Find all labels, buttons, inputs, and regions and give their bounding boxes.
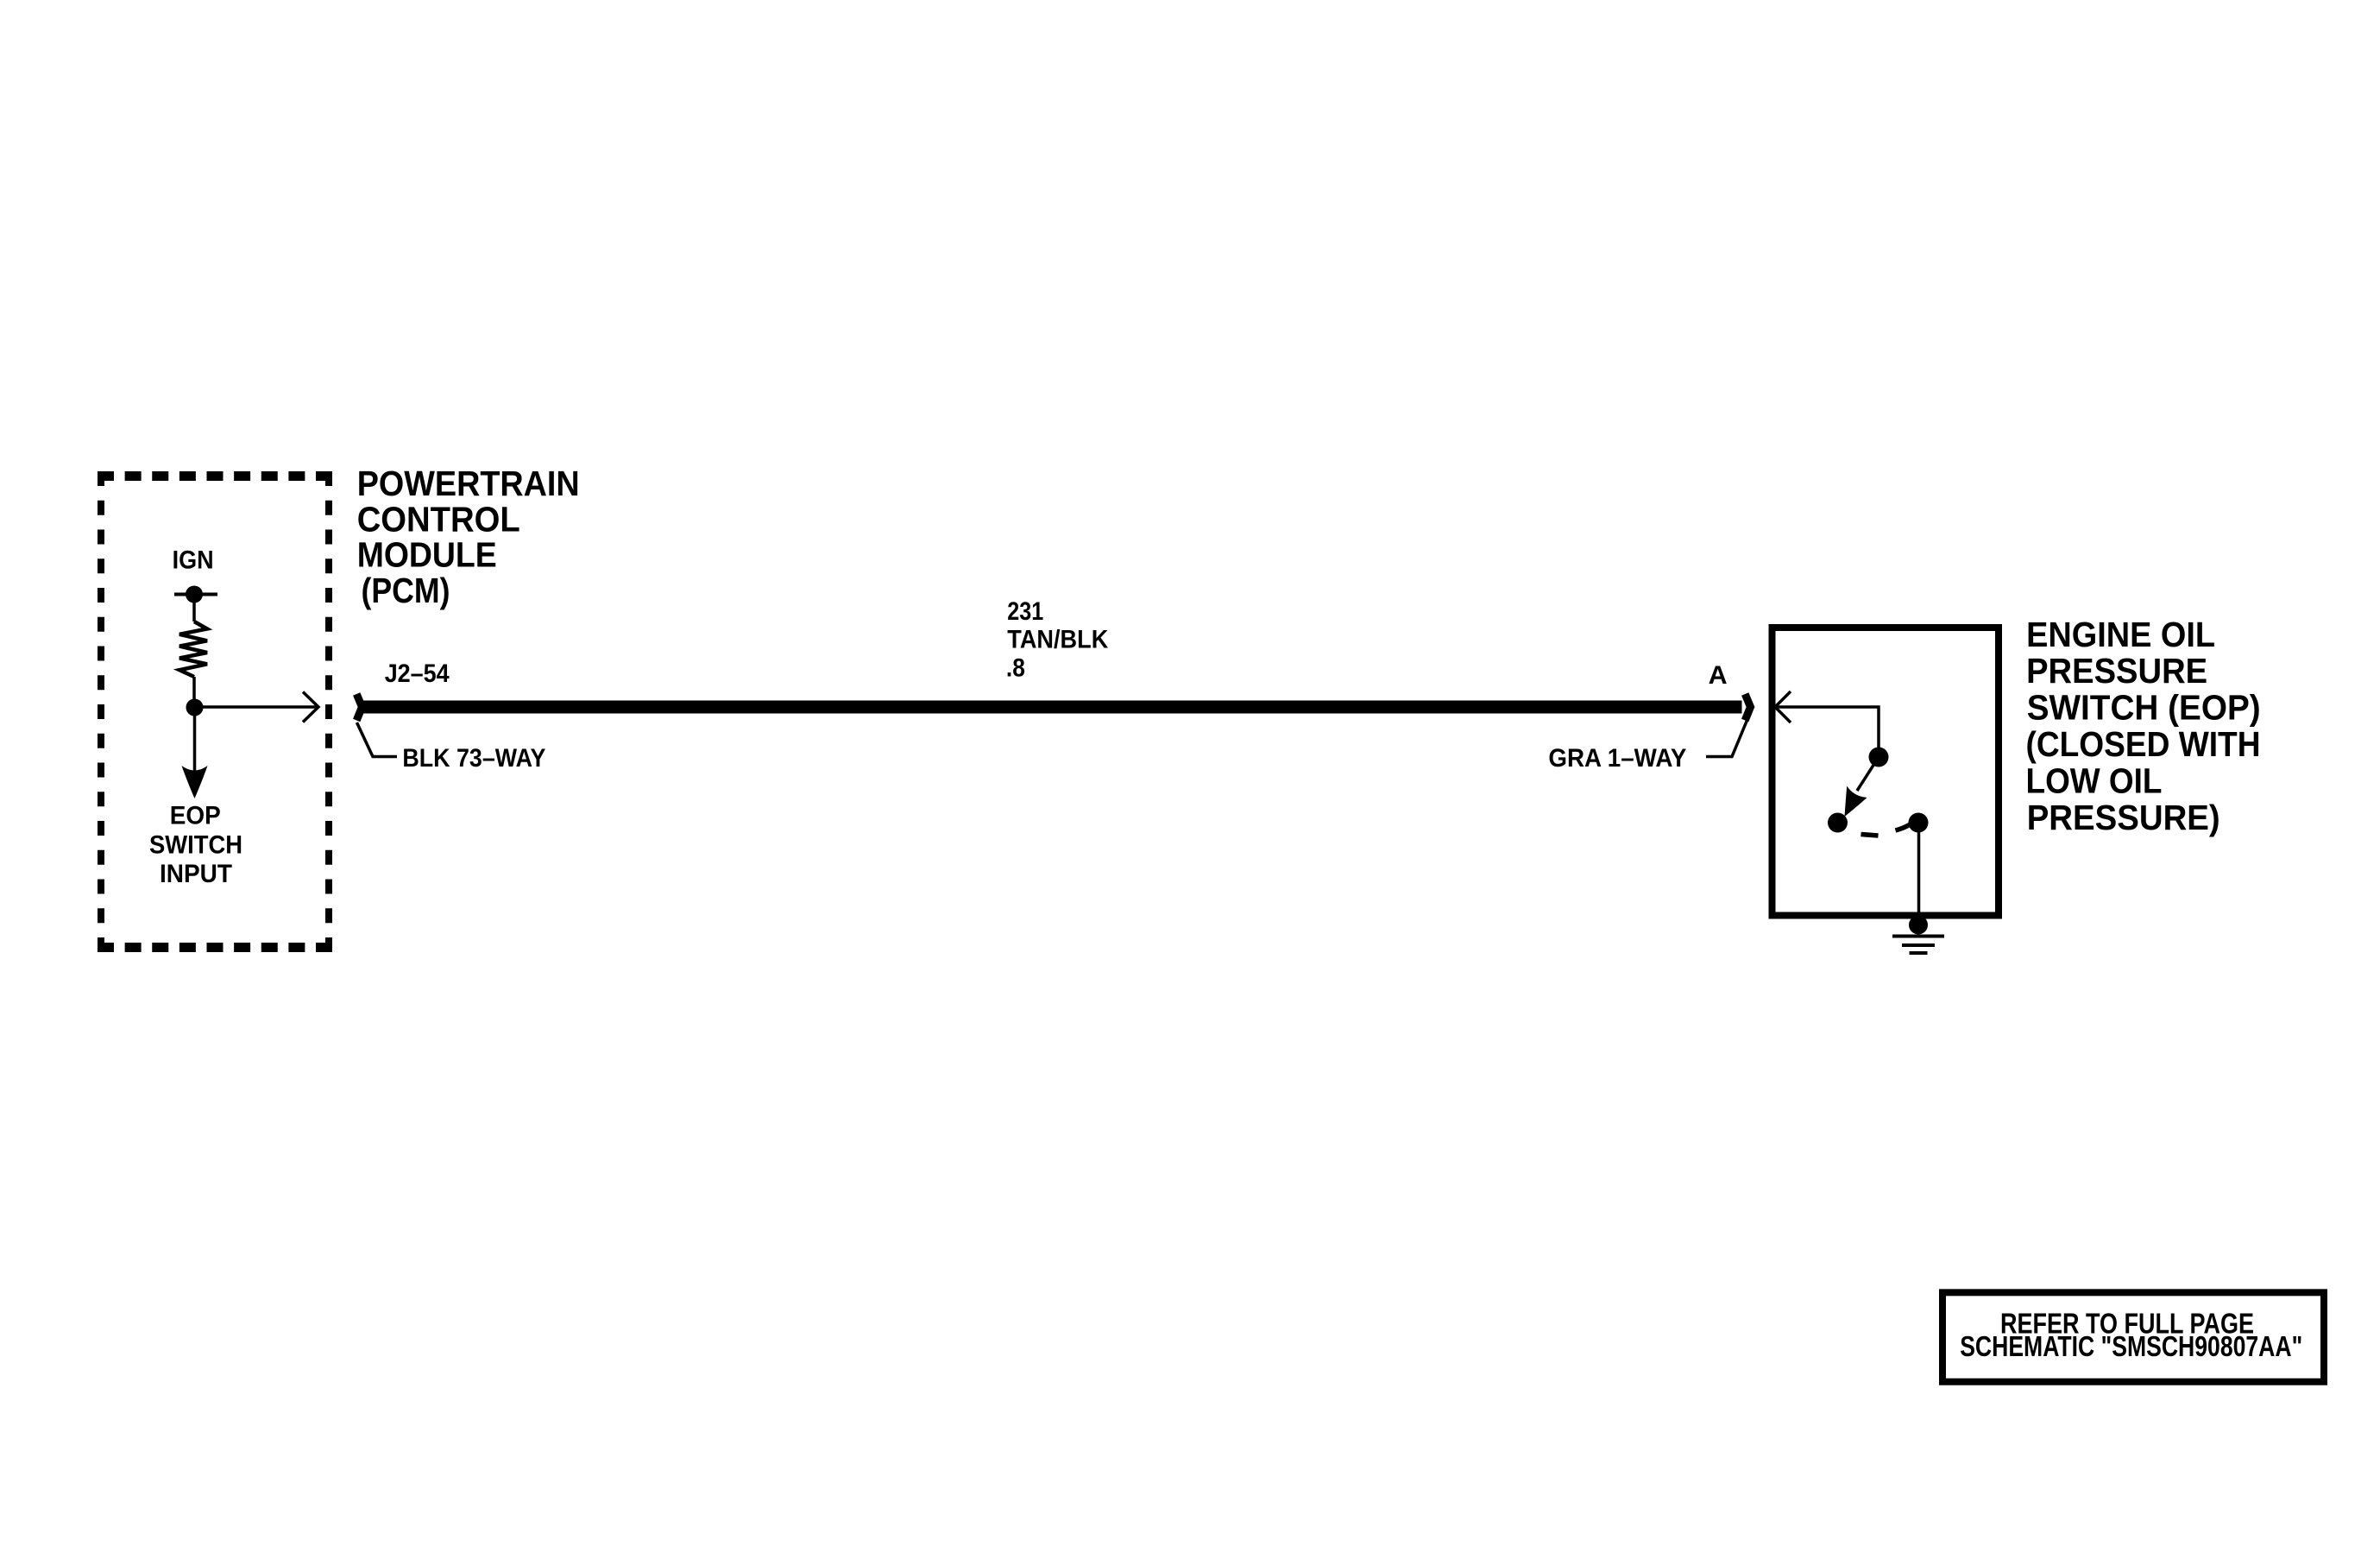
svg-text:231: 231	[1007, 597, 1043, 626]
svg-text:SWITCH (EOP): SWITCH (EOP)	[2027, 688, 2261, 728]
svg-text:(PCM): (PCM)	[362, 571, 450, 610]
svg-text:J2–54: J2–54	[385, 659, 450, 688]
svg-text:ENGINE OIL: ENGINE OIL	[2026, 615, 2215, 654]
svg-text:BLK 73–WAY: BLK 73–WAY	[402, 744, 545, 773]
svg-text:SWITCH: SWITCH	[149, 830, 242, 859]
svg-text:MODULE: MODULE	[357, 535, 497, 575]
svg-text:INPUT: INPUT	[160, 860, 232, 888]
svg-text:POWERTRAIN: POWERTRAIN	[357, 464, 580, 503]
svg-text:LOW OIL: LOW OIL	[2026, 760, 2163, 800]
svg-text:IGN: IGN	[173, 546, 214, 574]
svg-text:SCHEMATIC "SMSCH90807AA": SCHEMATIC "SMSCH90807AA"	[1960, 1330, 2302, 1362]
svg-text:A: A	[1709, 661, 1728, 690]
svg-text:CONTROL: CONTROL	[357, 499, 520, 539]
svg-text:TAN/BLK: TAN/BLK	[1007, 626, 1108, 654]
svg-text:EOP: EOP	[170, 802, 221, 830]
svg-text:PRESSURE): PRESSURE)	[2027, 798, 2220, 837]
svg-text:GRA 1–WAY: GRA 1–WAY	[1548, 744, 1686, 773]
svg-text:.8: .8	[1006, 654, 1025, 683]
svg-text:PRESSURE: PRESSURE	[2026, 651, 2207, 691]
svg-text:(CLOSED WITH: (CLOSED WITH	[2026, 724, 2261, 764]
